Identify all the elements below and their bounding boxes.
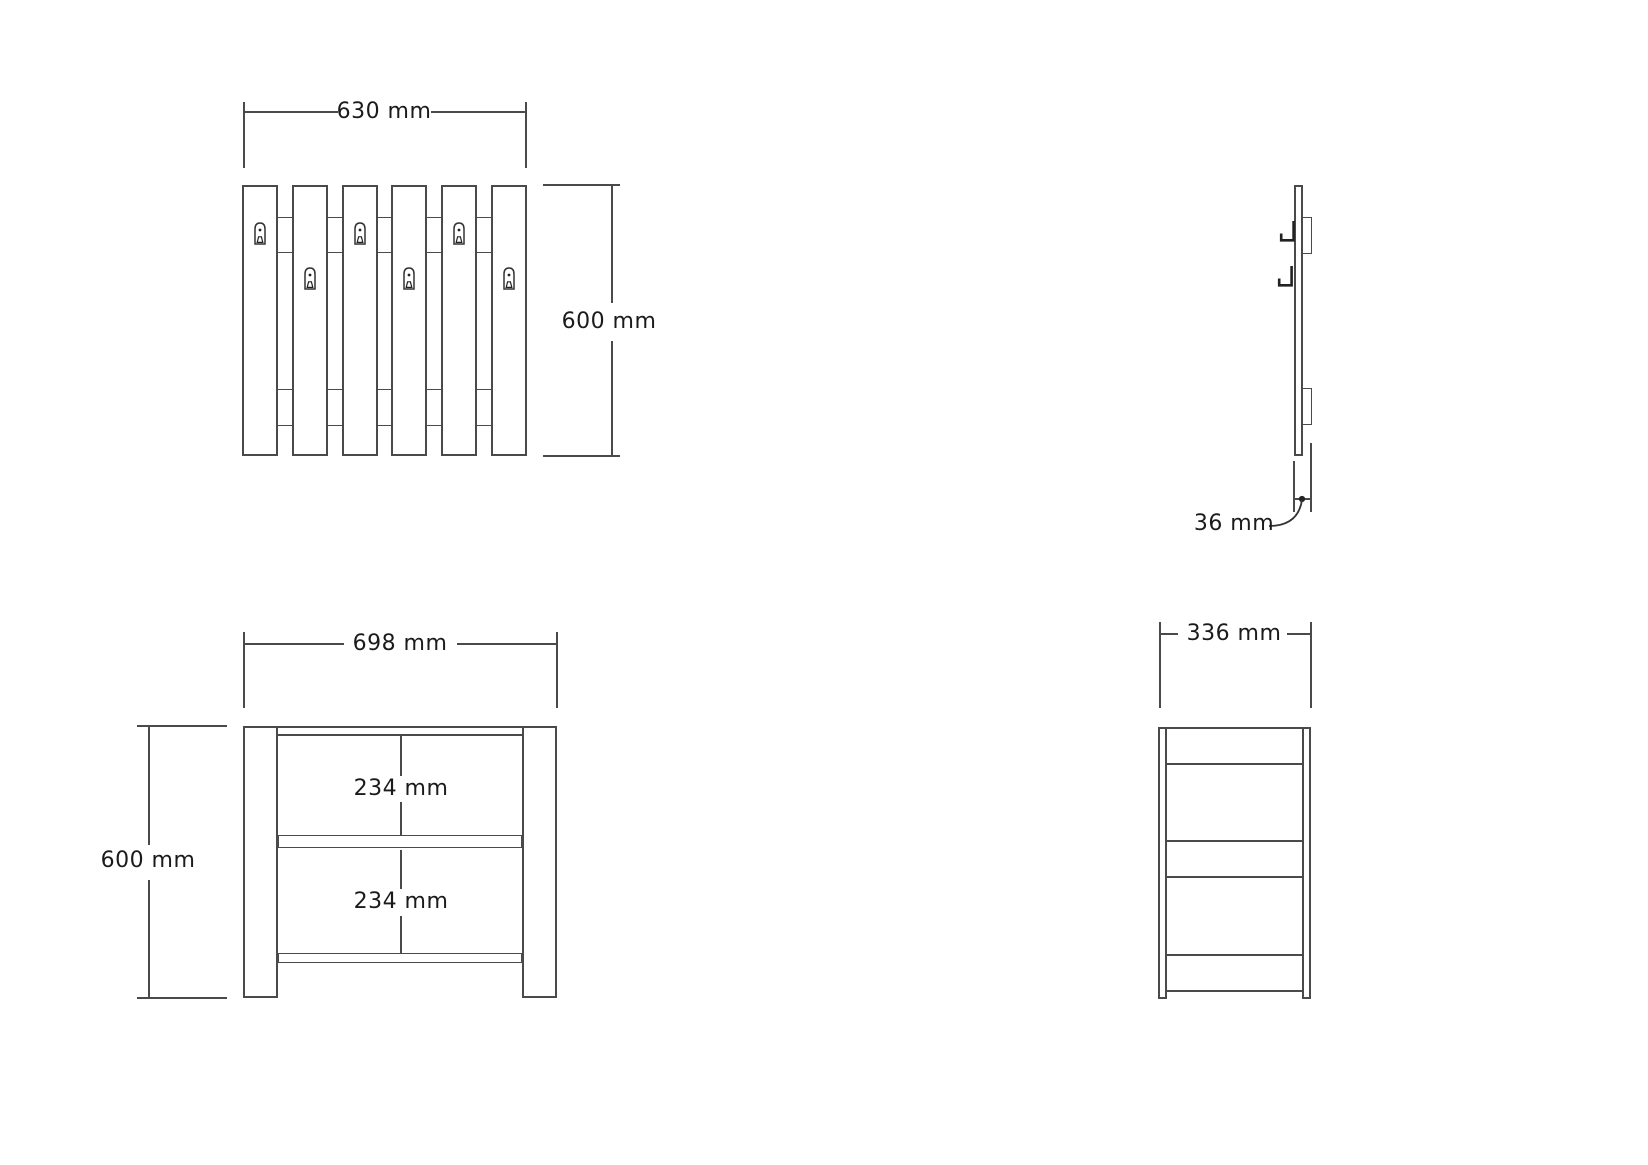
hook-icon	[1279, 221, 1295, 243]
bench-top-edge	[243, 726, 557, 728]
panel-side-top-rail	[1302, 217, 1312, 254]
dimension-line	[431, 111, 526, 113]
panel-side-bottom-rail	[1302, 388, 1312, 425]
dimension-tick	[1159, 622, 1161, 708]
panel-top-rail	[242, 217, 527, 253]
dimension-line	[244, 643, 344, 645]
keyhole-hanger-icon	[503, 267, 515, 290]
bench-bottom-shelf	[278, 953, 522, 963]
dimension-tick	[137, 725, 227, 727]
bench-side-rail-line	[1167, 763, 1302, 765]
dimension-line	[148, 880, 150, 997]
dimension-line	[611, 186, 613, 303]
panel-thickness-dimension-label: 36 mm	[1194, 513, 1274, 535]
bench-depth-dimension-label: 336 mm	[1187, 623, 1282, 645]
bench-side-back-leg	[1302, 727, 1311, 999]
keyhole-hanger-icon	[403, 267, 415, 290]
panel-slat	[391, 185, 427, 456]
hook-icon	[1277, 266, 1293, 288]
dimension-extension-line	[1310, 443, 1312, 512]
dimension-line	[400, 736, 402, 776]
dimension-line	[457, 643, 557, 645]
bench-side-rail-line	[1167, 876, 1302, 878]
keyhole-hanger-icon	[304, 267, 316, 290]
keyhole-hanger-icon	[254, 222, 266, 245]
dimension-tick	[137, 997, 227, 999]
dimension-tick	[1310, 622, 1312, 708]
bench-side-front-leg	[1158, 727, 1167, 999]
dimension-line	[1287, 633, 1311, 635]
bench-side-rail-line	[1167, 990, 1302, 992]
drawing-canvas: 630 mm 600 mm 36 mm 234 mm	[0, 0, 1648, 1165]
dimension-line	[244, 111, 338, 113]
panel-slat	[292, 185, 328, 456]
dimension-line	[400, 916, 402, 953]
bench-side-rail-line	[1167, 840, 1302, 842]
upper-shelf-gap-dimension-label: 234 mm	[354, 778, 449, 800]
panel-width-dimension-label: 630 mm	[337, 101, 432, 123]
dimension-line	[611, 341, 613, 456]
lower-shelf-gap-dimension-label: 234 mm	[354, 891, 449, 913]
dimension-line	[1160, 633, 1178, 635]
bench-right-leg	[522, 726, 557, 998]
dimension-tick	[543, 184, 620, 186]
panel-bottom-rail	[242, 389, 527, 426]
dimension-line	[148, 726, 150, 845]
bench-left-leg	[243, 726, 278, 998]
bench-side-top-edge	[1158, 727, 1311, 729]
bench-height-dimension-label: 600 mm	[101, 850, 196, 872]
dimension-line	[400, 850, 402, 889]
bench-width-dimension-label: 698 mm	[353, 633, 448, 655]
panel-slat	[491, 185, 527, 456]
keyhole-hanger-icon	[354, 222, 366, 245]
panel-height-dimension-label: 600 mm	[562, 311, 657, 333]
bench-side-rail-line	[1167, 954, 1302, 956]
dimension-line	[400, 802, 402, 835]
keyhole-hanger-icon	[453, 222, 465, 245]
bench-middle-shelf	[278, 835, 522, 848]
dimension-tick	[543, 455, 620, 457]
